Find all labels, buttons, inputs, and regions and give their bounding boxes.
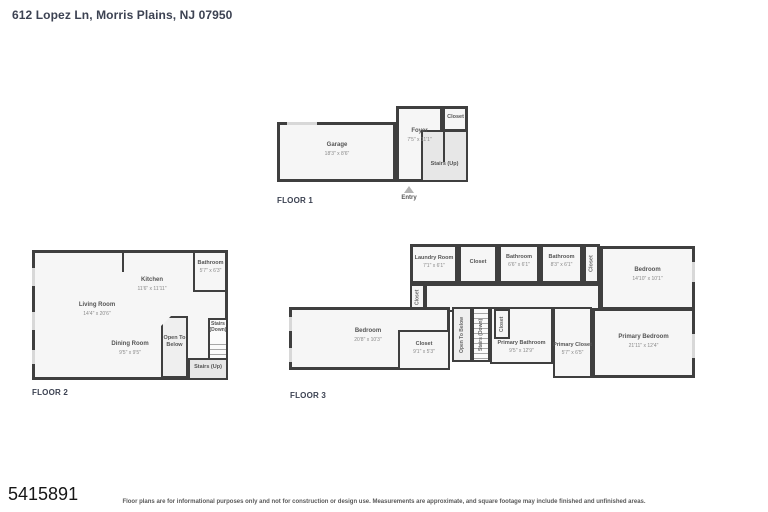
room-closet-mid-f3 [583, 244, 600, 284]
stair-treads-f2 [210, 340, 226, 358]
window [289, 348, 292, 362]
floor2-plan: Living Room 14'4" x 20'6" Kitchen 11'6" … [32, 250, 228, 400]
room-closet-br-f3 [398, 330, 450, 370]
window [692, 262, 695, 282]
floor2-caption: FLOOR 2 [32, 388, 68, 397]
room-open-to-below-f3 [452, 307, 472, 362]
room-closet-f1 [443, 106, 468, 131]
garage-window [287, 122, 317, 125]
floor-plan-document: { "title": "612 Lopez Ln, Morris Plains,… [0, 0, 768, 512]
floor3-plan: Laundry Room 7'1" x 6'1" Closet Bathroom… [289, 242, 695, 402]
stair-rail [443, 132, 445, 162]
kitchen-wall [122, 250, 124, 272]
window [32, 268, 35, 286]
window [692, 334, 695, 358]
room-primary-closet [553, 307, 592, 378]
room-garage [277, 122, 396, 182]
room-bedroom-top-f3 [600, 246, 695, 310]
floor1-plan: Garage 18'3" x 8'6" Foyer 7'5" x 11'1" C… [277, 106, 468, 208]
floor1-caption: FLOOR 1 [277, 196, 313, 205]
entry-arrow-icon [404, 186, 414, 193]
room-open-to-below-f2 [161, 316, 188, 378]
room-bathroom-b-f3 [540, 244, 583, 284]
window [32, 350, 35, 364]
room-primary-bedroom [592, 308, 695, 378]
window [289, 317, 292, 331]
room-closet-top-f3 [458, 244, 498, 284]
floor3-caption: FLOOR 3 [290, 391, 326, 400]
room-laundry [410, 244, 458, 284]
stair-treads-f3 [474, 309, 488, 360]
page-title: 612 Lopez Ln, Morris Plains, NJ 07950 [12, 8, 232, 22]
window [32, 312, 35, 330]
disclaimer-text: Floor plans are for informational purpos… [0, 499, 768, 505]
room-closet-small-f3 [494, 309, 510, 339]
entry-label: Entry [394, 195, 424, 201]
room-bathroom-a-f3 [498, 244, 540, 284]
room-stairs-up-f2 [188, 358, 228, 380]
room-bathroom-f2 [193, 250, 228, 292]
